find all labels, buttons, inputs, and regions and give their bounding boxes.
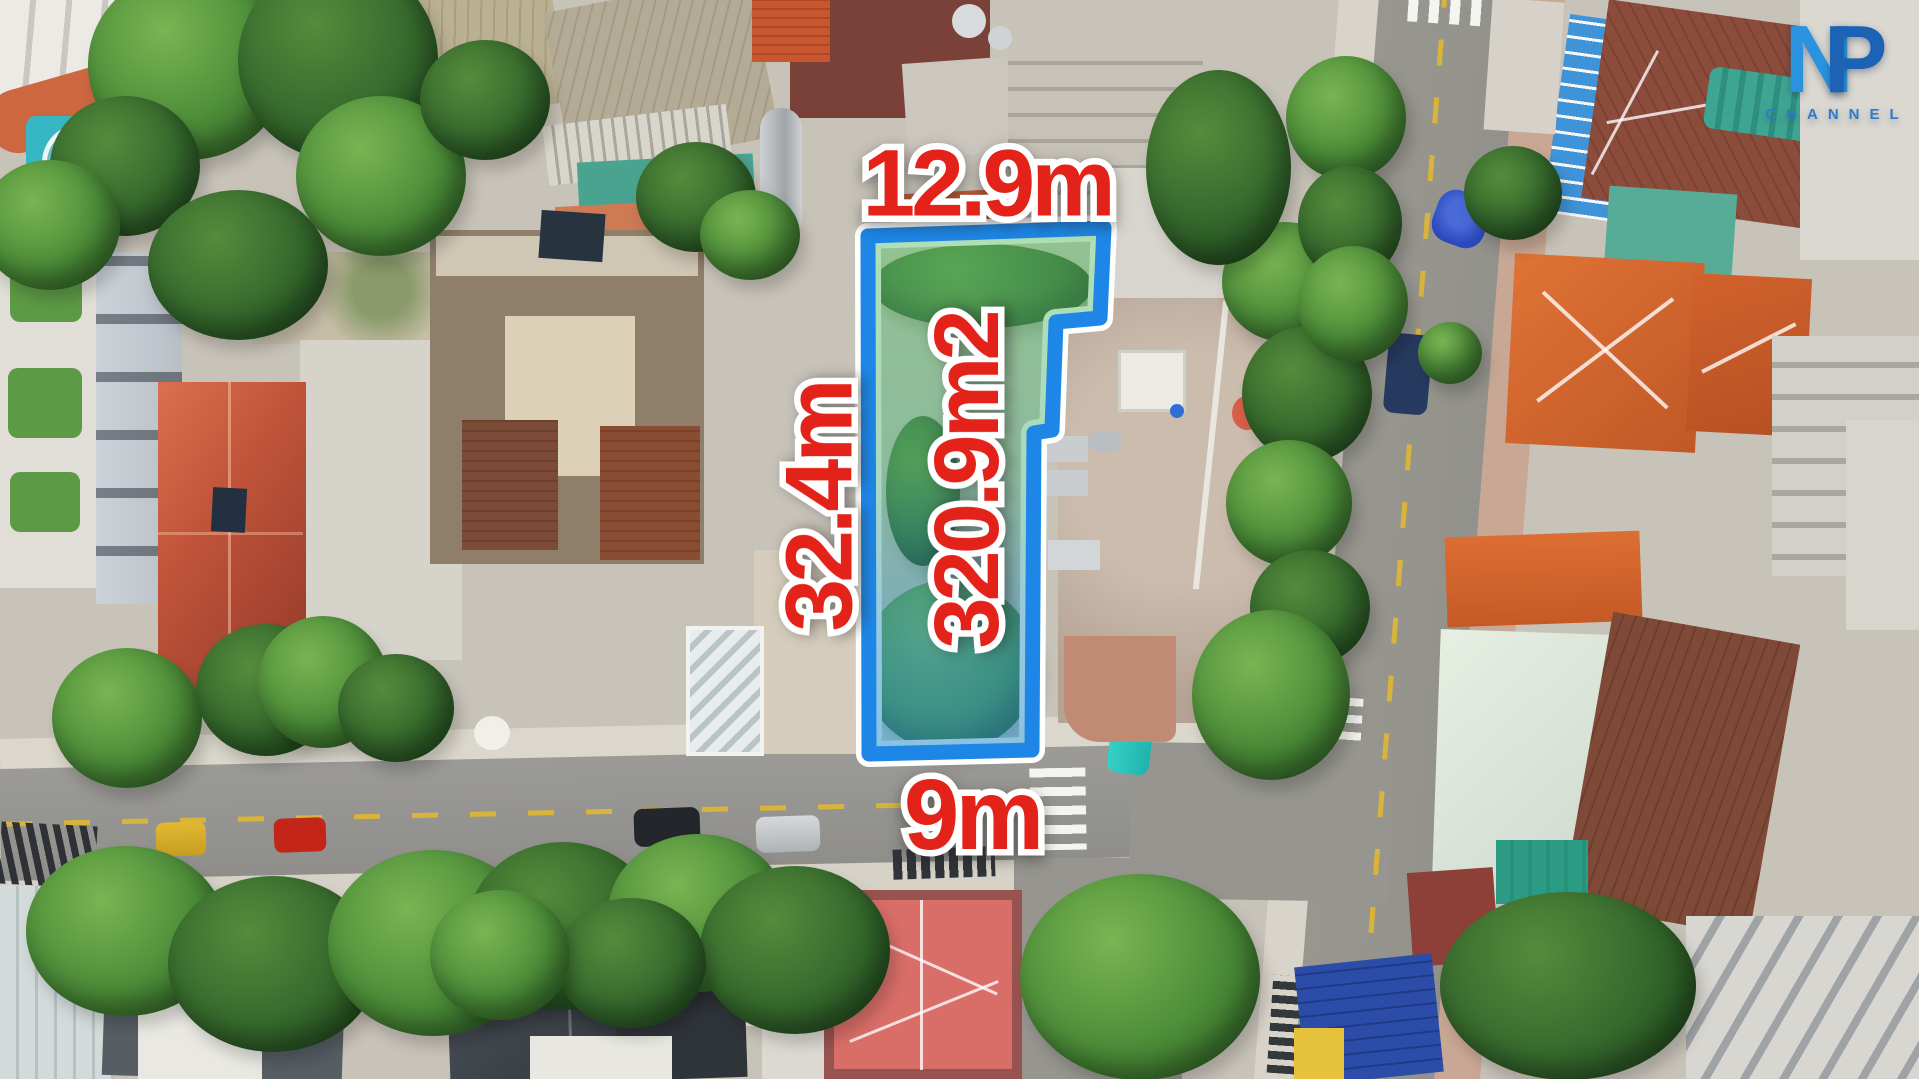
area-label: 320.9m2 320.9m2 — [921, 313, 1013, 648]
road-width-label: 9m 9m — [904, 765, 1041, 865]
frontage-label-text: 12.9m — [862, 137, 1111, 232]
np-wordmark: NP — [1738, 16, 1919, 104]
frontage-label: 12.9m 12.9m — [862, 137, 1111, 232]
depth-label-text: 32.4m — [773, 382, 868, 631]
logo-letter-p: P — [1824, 6, 1882, 113]
aerial-photo: 12.9m 12.9m 32.4m 32.4m 320.9m2 320.9m2 … — [0, 0, 1919, 1079]
np-channel-logo: NP CHANNEL — [1738, 16, 1919, 123]
depth-label: 32.4m 32.4m — [773, 382, 868, 631]
channel-wordmark: CHANNEL — [1738, 106, 1919, 123]
road-width-label-text: 9m — [904, 765, 1041, 865]
area-label-text: 320.9m2 — [921, 313, 1013, 648]
